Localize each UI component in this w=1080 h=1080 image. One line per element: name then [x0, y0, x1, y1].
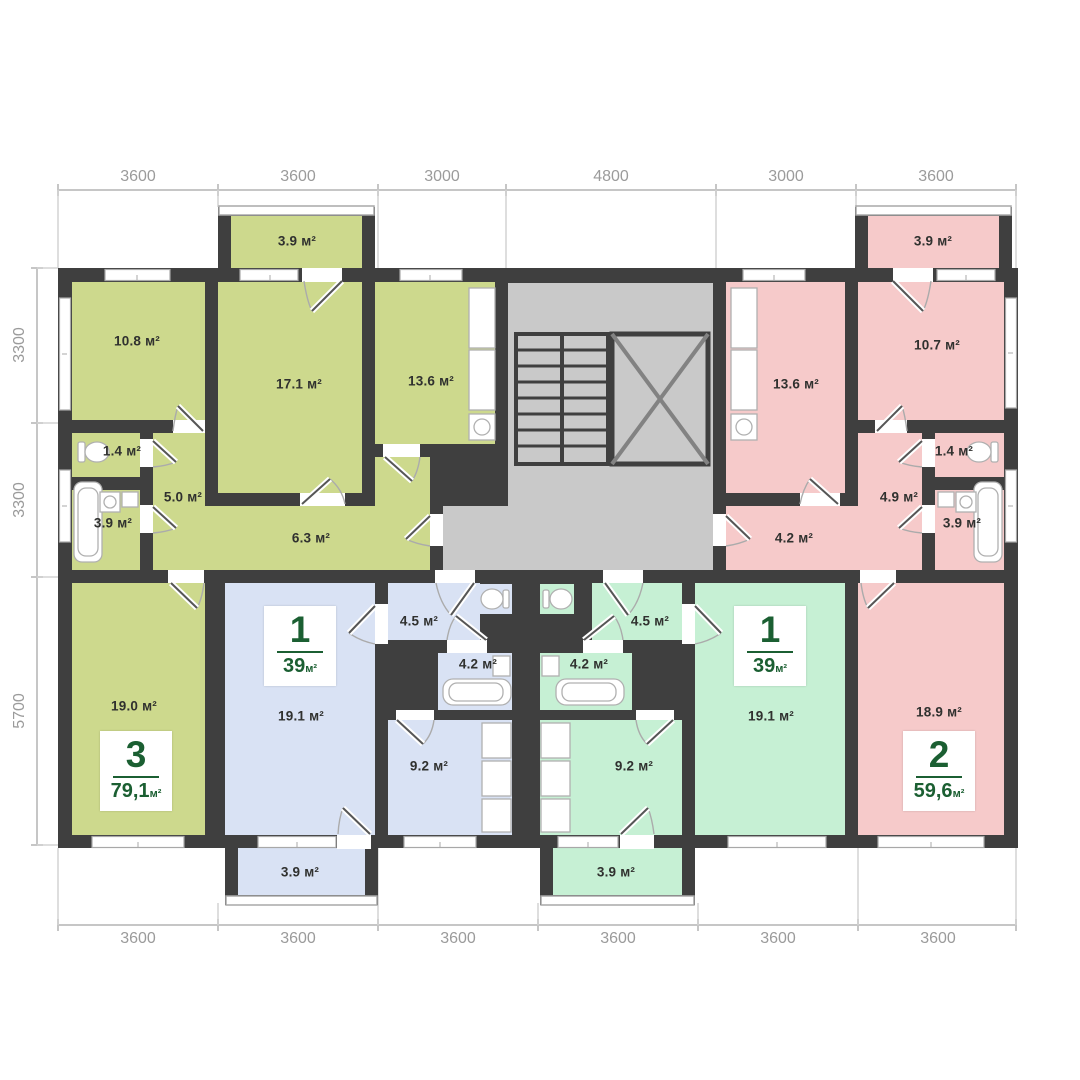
window-g-kitchen: [400, 270, 462, 281]
dim-top-1: 3600: [120, 168, 156, 186]
room-label-g-hall: 5.0 м²: [164, 490, 202, 505]
room-label-p-bed: 10.7 м²: [914, 338, 960, 353]
dim-bottom-6: 3600: [920, 930, 956, 948]
room-label-m-room: 19.1 м²: [748, 709, 794, 724]
dim-top-4: 4800: [593, 168, 629, 186]
toilet-icon-b: [481, 589, 509, 609]
apartment-badge-2: 2 59,6м²: [903, 731, 975, 811]
room-label-p-corridor: 4.2 м²: [775, 531, 813, 546]
apartment-area: 59,6м²: [903, 781, 975, 804]
apartment-badge-1-left: 1 39м²: [264, 606, 336, 686]
kitchen-counter-m: [541, 723, 570, 832]
badge-divider: [277, 651, 323, 653]
badge-divider: [747, 651, 793, 653]
room-label-p-bath: 3.9 м²: [943, 516, 981, 531]
window-g-balcony: [240, 270, 298, 281]
room-label-b-bath: 4.2 м²: [459, 657, 497, 672]
apartment-badge-1-right: 1 39м²: [734, 606, 806, 686]
room-label-b-room: 19.1 м²: [278, 709, 324, 724]
room-m-hall: [592, 583, 682, 640]
room-label-p-hall: 4.9 м²: [880, 490, 918, 505]
apartment-area: 39м²: [264, 656, 336, 679]
room-label-g-wc: 1.4 м²: [103, 444, 141, 459]
apartment-area: 79,1м²: [100, 781, 172, 804]
room-label-m-kitchen: 9.2 м²: [615, 759, 653, 774]
badge-divider: [113, 776, 159, 778]
room-label-p-balcony: 3.9 м²: [914, 234, 952, 249]
room-label-p-wc: 1.4 м²: [935, 444, 973, 459]
room-label-m-hall: 4.5 м²: [631, 614, 669, 629]
room-label-p-kitchen: 13.6 м²: [773, 377, 819, 392]
room-label-g-balcony: 3.9 м²: [278, 234, 316, 249]
badge-divider: [916, 776, 962, 778]
bathtub-icon-m: [556, 679, 624, 705]
dim-bottom-2: 3600: [280, 930, 316, 948]
sink-icon-g: [122, 492, 138, 507]
room-label-m-balcony: 3.9 м²: [597, 865, 635, 880]
dim-bottom-3: 3600: [440, 930, 476, 948]
apartment-badge-3: 3 79,1м²: [100, 731, 172, 811]
apartment-number: 2: [903, 737, 975, 773]
sink-icon-p: [938, 492, 954, 507]
room-label-b-hall: 4.5 м²: [400, 614, 438, 629]
room-p-corridor: [726, 506, 922, 570]
dim-left-2: 3300: [11, 482, 29, 518]
washer-icon-g: [100, 492, 120, 512]
apartment-number: 1: [734, 612, 806, 648]
kitchen-counter-g: [469, 288, 495, 440]
dim-bottom-1: 3600: [120, 930, 156, 948]
dim-top-6: 3600: [918, 168, 954, 186]
room-label-g-corridor: 6.3 м²: [292, 531, 330, 546]
apartment-number: 1: [264, 612, 336, 648]
dim-top-2: 3600: [280, 168, 316, 186]
room-label-b-kitchen: 9.2 м²: [410, 759, 448, 774]
room-label-p-room: 18.9 м²: [916, 705, 962, 720]
bathtub-icon-b: [443, 679, 511, 705]
dim-bottom-5: 3600: [760, 930, 796, 948]
sink-icon-m: [542, 656, 559, 676]
room-label-g-room2: 19.0 м²: [111, 699, 157, 714]
dim-top-5: 3000: [768, 168, 804, 186]
dim-top-3: 3000: [424, 168, 460, 186]
room-label-b-balcony: 3.9 м²: [281, 865, 319, 880]
dim-left-1: 3300: [11, 327, 29, 363]
kitchen-counter-p: [731, 288, 757, 440]
dim-left-3: 5700: [11, 693, 29, 729]
apartment-area: 39м²: [734, 656, 806, 679]
floor-plan-canvas: 3600 3600 3000 4800 3000 3600 3300 3300 …: [0, 0, 1080, 1080]
floor-plan-drawing: [0, 0, 1080, 1080]
washer-icon-p: [956, 492, 976, 512]
dim-bottom-4: 3600: [600, 930, 636, 948]
kitchen-counter-b: [482, 723, 511, 832]
room-label-g-bed: 10.8 м²: [114, 334, 160, 349]
room-label-m-bath: 4.2 м²: [570, 657, 608, 672]
apartment-number: 3: [100, 737, 172, 773]
room-label-g-bath: 3.9 м²: [94, 516, 132, 531]
room-label-g-kitchen: 13.6 м²: [408, 374, 454, 389]
elevator: [612, 334, 708, 464]
room-g-bed: [72, 282, 205, 420]
toilet-icon-m: [543, 589, 572, 609]
room-label-g-living: 17.1 м²: [276, 377, 322, 392]
